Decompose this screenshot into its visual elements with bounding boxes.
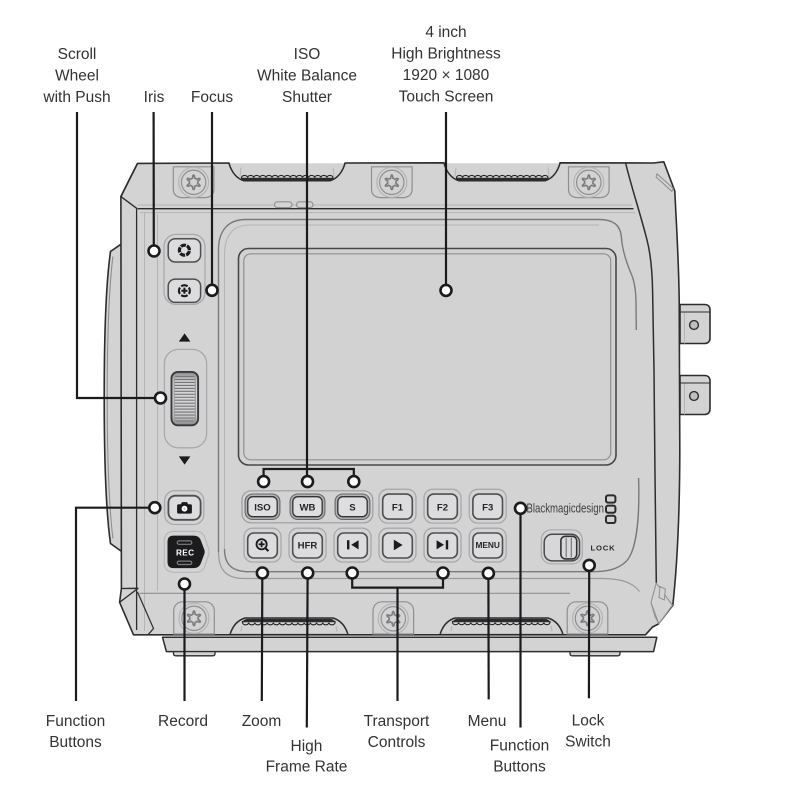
svg-text:Menu: Menu xyxy=(468,713,507,730)
svg-text:REC: REC xyxy=(176,549,195,558)
svg-text:LockSwitch: LockSwitch xyxy=(565,713,611,751)
svg-text:FunctionButtons: FunctionButtons xyxy=(46,713,105,751)
svg-text:Blackmagicdesign: Blackmagicdesign xyxy=(527,500,605,515)
svg-text:Record: Record xyxy=(158,713,208,730)
svg-text:MENU: MENU xyxy=(475,540,499,550)
svg-text:FunctionButtons: FunctionButtons xyxy=(490,738,549,776)
svg-text:ScrollWheelwith Push: ScrollWheelwith Push xyxy=(42,46,110,106)
svg-text:HighFrame Rate: HighFrame Rate xyxy=(266,738,348,776)
svg-text:Zoom: Zoom xyxy=(242,713,282,730)
svg-text:HFR: HFR xyxy=(298,541,318,552)
svg-text:WB: WB xyxy=(300,503,316,514)
svg-text:ISOWhite BalanceShutter: ISOWhite BalanceShutter xyxy=(257,46,357,106)
svg-text:F2: F2 xyxy=(437,503,448,514)
svg-text:ISO: ISO xyxy=(254,503,271,514)
svg-text:LOCK: LOCK xyxy=(591,544,616,553)
svg-text:F1: F1 xyxy=(392,503,404,514)
svg-text:TransportControls: TransportControls xyxy=(364,713,430,751)
svg-text:Focus: Focus xyxy=(191,89,233,106)
svg-text:F3: F3 xyxy=(482,503,493,514)
svg-text:4 inchHigh Brightness1920 × 10: 4 inchHigh Brightness1920 × 1080Touch Sc… xyxy=(391,24,501,106)
svg-text:S: S xyxy=(349,503,356,514)
svg-text:Iris: Iris xyxy=(144,89,165,106)
